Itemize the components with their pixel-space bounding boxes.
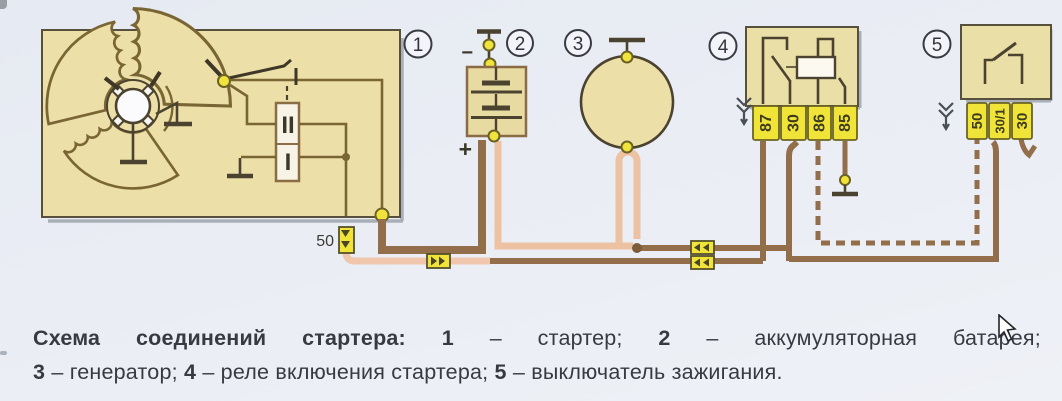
- caption-item-2-num: 2: [658, 326, 670, 350]
- solenoid-junction-dot: [342, 153, 350, 161]
- caption-item-4-num: 4: [184, 360, 196, 384]
- solenoid-winding-I-label: I: [285, 149, 292, 176]
- caption-item-1-text: – стартер;: [490, 326, 623, 350]
- starter-contact-ring: [218, 75, 230, 87]
- callout-3: 3: [573, 34, 584, 55]
- starter-wiring-figure: II I: [0, 0, 1062, 401]
- inline-connector-mid: [427, 254, 450, 268]
- battery-plus-label: +: [459, 136, 472, 162]
- relay-ground-symbol: [832, 185, 858, 194]
- caption-item-5-num: 5: [495, 360, 507, 384]
- switch-terminals: 50 30/1 30: [967, 103, 1032, 139]
- harness-arrow-icon-2: [939, 103, 953, 129]
- ignition30-stub-wire: [1021, 139, 1035, 155]
- relay-terminal-85-label: 85: [837, 114, 854, 132]
- generator-unit: [581, 40, 673, 153]
- figure-caption: Схема соединений стартера: 1 – стартер; …: [33, 322, 1041, 389]
- mouse-cursor-icon: [995, 314, 1019, 344]
- generator-bottom-ring: [622, 142, 633, 153]
- battery-minus-ring: [484, 40, 495, 51]
- caption-item-4-text: – реле включения стартера;: [202, 360, 488, 384]
- switch-terminal-50-label: 50: [969, 113, 986, 130]
- caption-item-5-text: – выключатель зажигания.: [513, 360, 783, 384]
- relay30-drop-wire: [789, 142, 797, 261]
- relay86-to-ignition50-wire: [818, 139, 977, 243]
- scan-artifact-caption-left: [0, 351, 7, 355]
- power-junction-dot: [632, 243, 642, 253]
- relay-coil: [797, 57, 835, 78]
- battery-feed-wire: [498, 141, 633, 246]
- starter-unit: II I: [28, 0, 403, 222]
- caption-item-1-num: 1: [442, 326, 454, 350]
- solenoid-winding-II-label: II: [281, 112, 294, 139]
- inline-connector-double: [691, 241, 714, 269]
- callout-5: 5: [932, 35, 943, 56]
- caption-item-2-text: – аккумуляторная батарея;: [706, 326, 1041, 350]
- relay85-ring: [840, 175, 850, 185]
- callout-2: 2: [515, 34, 526, 55]
- relay-terminal-30-label: 30: [786, 114, 803, 132]
- battery-minus-label: −: [461, 42, 473, 64]
- generator-output-wire: [619, 152, 637, 245]
- caption-line-2: 3 – генератор; 4 – реле включения старте…: [33, 356, 1041, 389]
- switch-terminal-301-label: 30/1: [993, 108, 1008, 133]
- scan-artifact-top-left: [0, 0, 7, 9]
- ignition-switch-unit: 50 30/1 30: [939, 25, 1051, 139]
- generator-top-ring: [622, 52, 633, 63]
- caption-item-3-text: – генератор;: [51, 360, 177, 384]
- caption-title: Схема соединений стартера:: [33, 326, 406, 350]
- battery-plus-ring: [489, 131, 500, 142]
- caption-line-1: Схема соединений стартера: 1 – стартер; …: [33, 322, 1041, 355]
- starter-relay-unit: 87 30 86 85: [737, 27, 860, 140]
- starter-terminal-50-label: 50: [316, 233, 334, 250]
- callout-4: 4: [718, 37, 729, 58]
- caption-item-3-num: 3: [33, 360, 45, 384]
- callout-1: 1: [413, 35, 424, 56]
- switch-box: [961, 25, 1051, 99]
- relay-terminal-87-label: 87: [758, 114, 775, 132]
- starter50-connector: [339, 227, 354, 253]
- switch-terminal-30-label: 30: [1014, 113, 1031, 130]
- wiring-diagram-canvas: II I: [0, 0, 1062, 312]
- relay-terminal-86-label: 86: [812, 114, 829, 132]
- generator-circle: [581, 56, 673, 148]
- relay-terminals: 87 30 86 85: [753, 106, 857, 140]
